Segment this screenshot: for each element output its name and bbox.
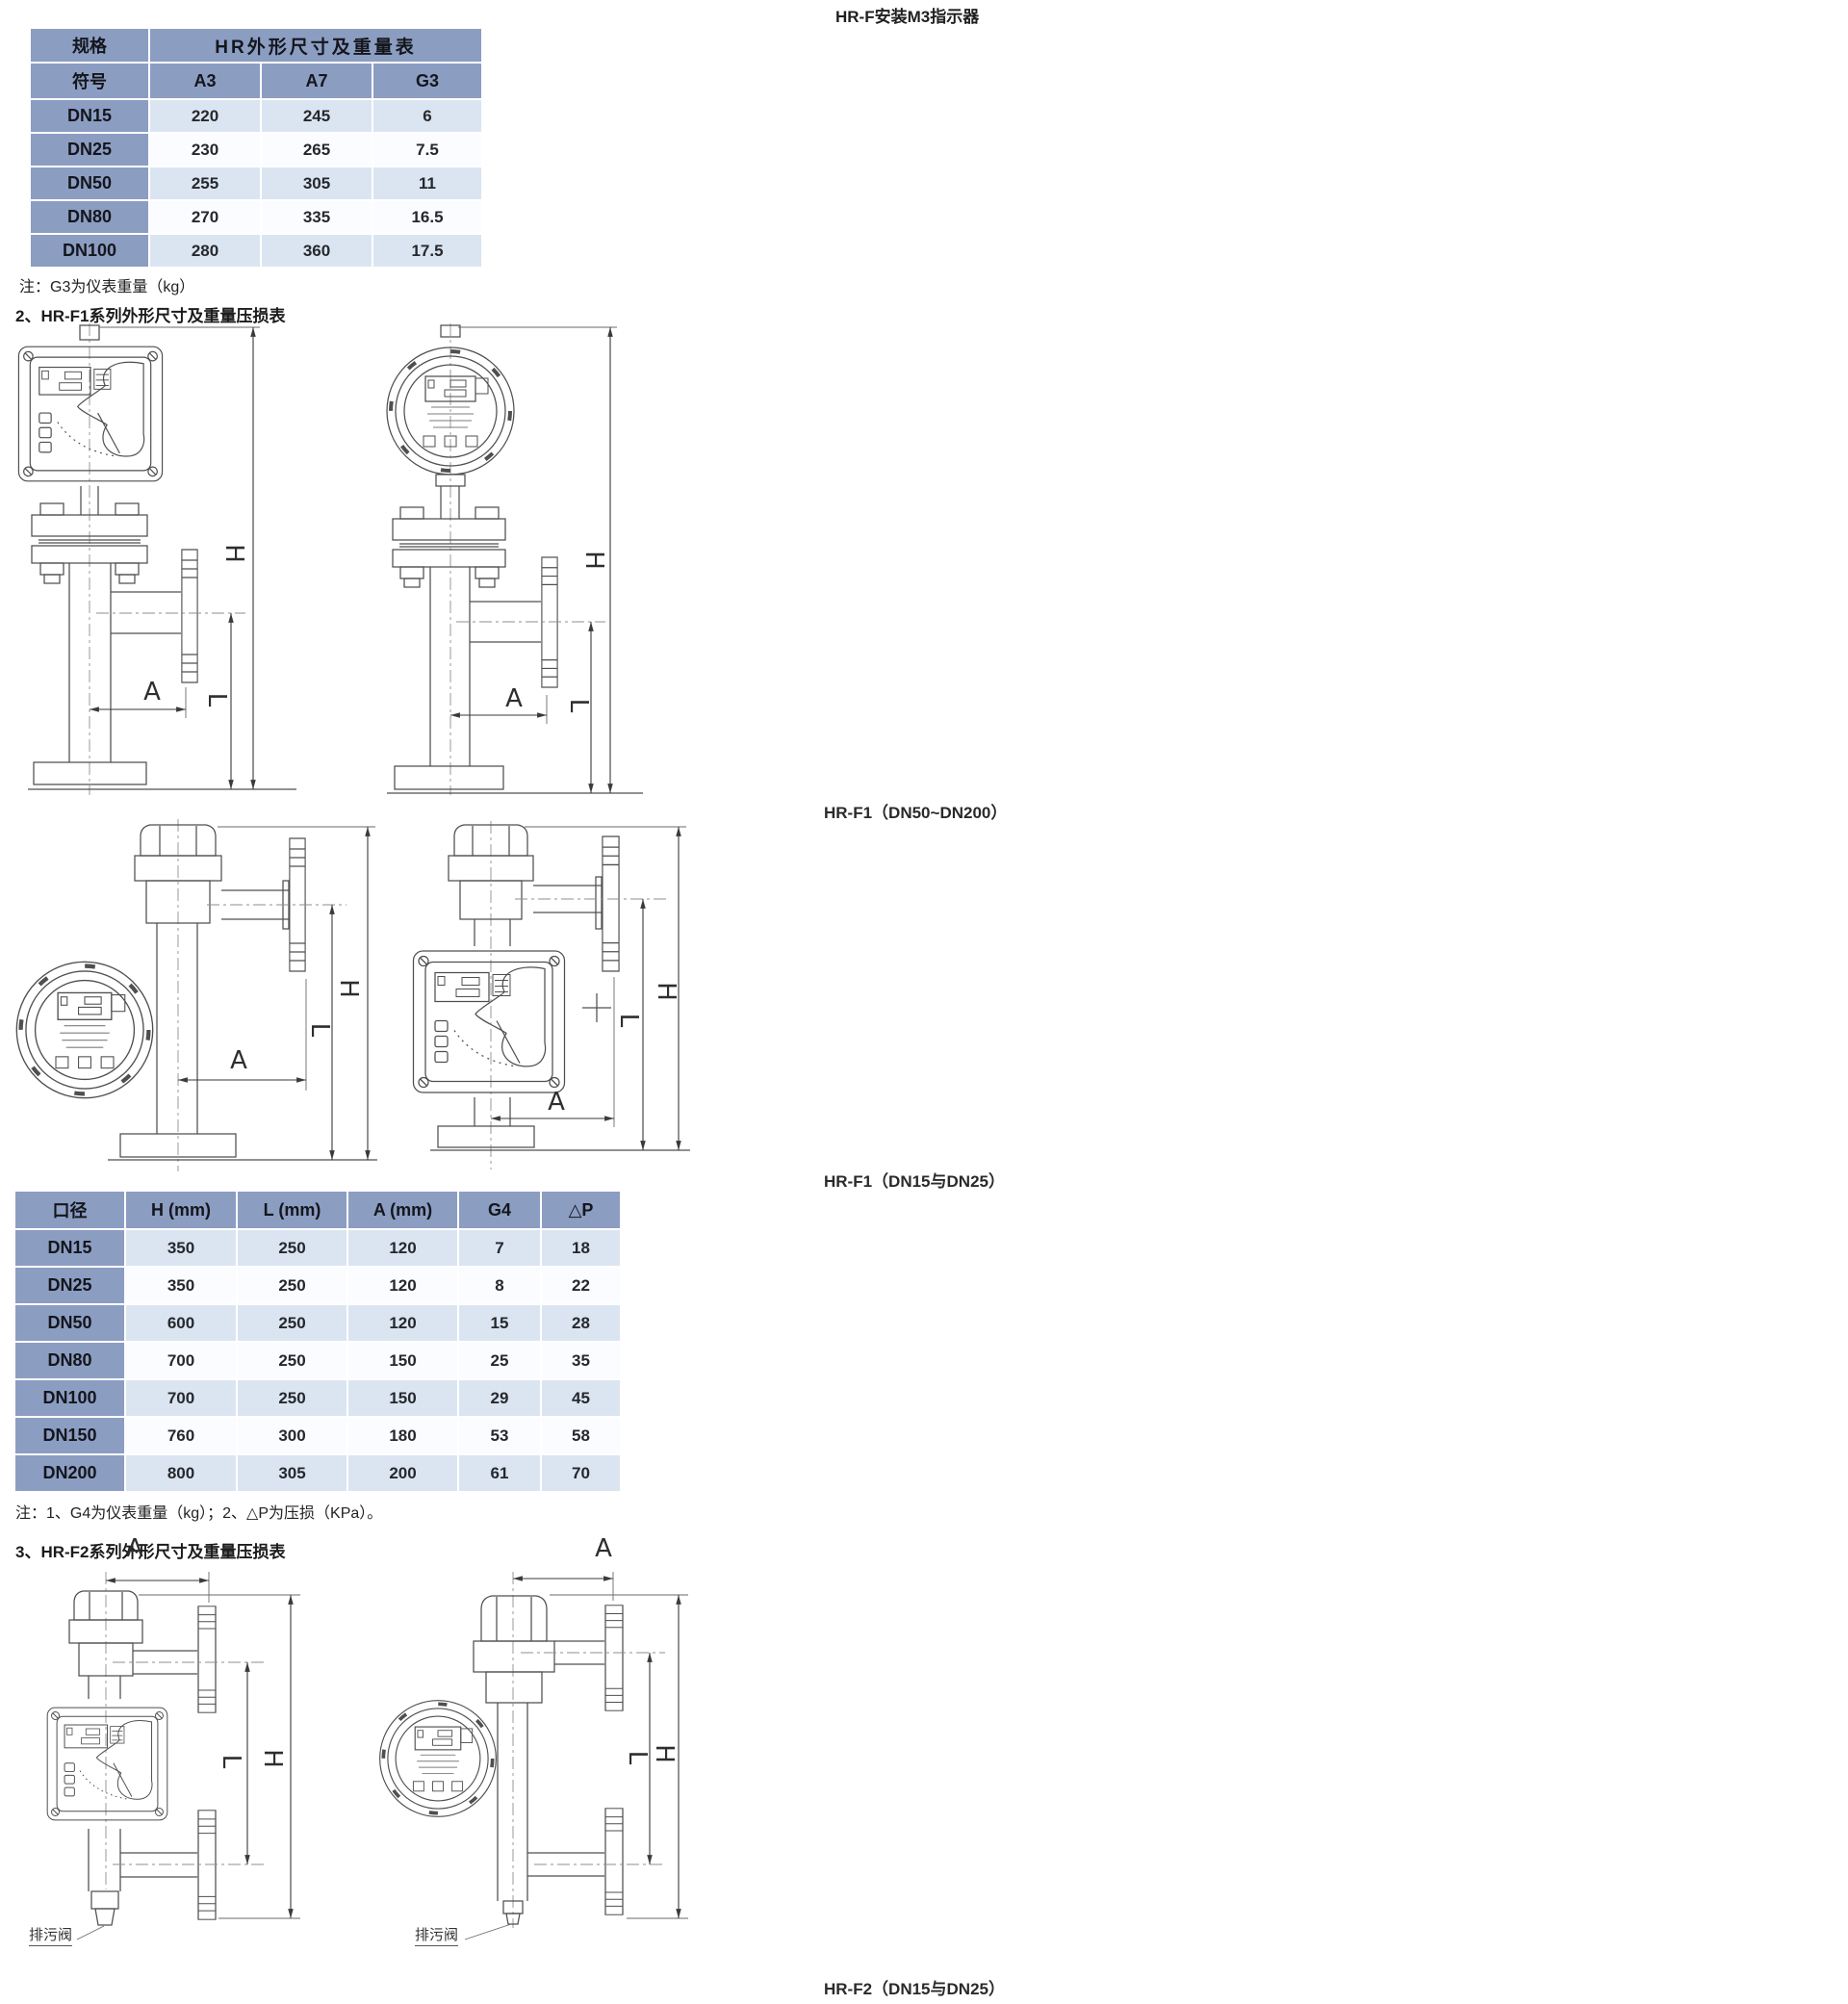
table-cell: 265 bbox=[261, 133, 372, 167]
table-cell: 120 bbox=[347, 1304, 458, 1342]
dim-label-h: H bbox=[579, 551, 608, 570]
flange bbox=[198, 1811, 216, 1919]
hr-f1-dimensions-weight-pressure-table: 口径 H (mm) L (mm) A (mm) G4 △P DN15 350 2… bbox=[13, 1190, 622, 1493]
table-cell: 35 bbox=[541, 1342, 621, 1379]
table-cell: 120 bbox=[347, 1229, 458, 1267]
table-cell: 350 bbox=[125, 1267, 237, 1304]
flowmeter-drawing bbox=[0, 813, 390, 1194]
flowmeter-drawing bbox=[12, 323, 300, 802]
row-header: DN200 bbox=[14, 1454, 125, 1492]
table-cell: 17.5 bbox=[372, 234, 482, 268]
table-row: 口径 H (mm) L (mm) A (mm) G4 △P bbox=[14, 1191, 621, 1229]
flowmeter-drawing bbox=[409, 813, 698, 1198]
flange bbox=[605, 1606, 623, 1710]
table-cell: 300 bbox=[237, 1417, 347, 1454]
hr-f2-round-head-drawing: A H L 排污阀 bbox=[369, 1535, 701, 1964]
table-row: DN100 280 360 17.5 bbox=[30, 234, 482, 268]
table-cell: 45 bbox=[541, 1379, 621, 1417]
table-cell: 18 bbox=[541, 1229, 621, 1267]
table-cell: 800 bbox=[125, 1454, 237, 1492]
table-cell: 53 bbox=[458, 1417, 541, 1454]
indicator-head bbox=[414, 951, 565, 1092]
table2-col-a: A (mm) bbox=[347, 1191, 458, 1229]
drain-valve bbox=[91, 1891, 118, 1909]
table-cell: 16.5 bbox=[372, 200, 482, 234]
datasheet-page: HR-F安装M3指示器 规格 HR外形尺寸及重量表 符号 A3 A7 G3 DN… bbox=[0, 0, 1848, 2004]
dim-label-h: H bbox=[650, 1744, 679, 1763]
flowmeter-drawing bbox=[21, 1535, 329, 1959]
indicator-head bbox=[380, 1701, 497, 1817]
flange bbox=[182, 550, 197, 682]
hr-f1-dn15-dn25-square-head-drawing: H L A bbox=[409, 813, 698, 1198]
flange bbox=[605, 1809, 623, 1914]
table2-col-diameter: 口径 bbox=[14, 1191, 125, 1229]
dim-label-l: L bbox=[202, 693, 231, 707]
table-cell: 280 bbox=[149, 234, 261, 268]
table-cell: 600 bbox=[125, 1304, 237, 1342]
dim-label-h: H bbox=[652, 982, 680, 1001]
table-cell: 220 bbox=[149, 99, 261, 133]
row-header: DN15 bbox=[30, 99, 149, 133]
table-cell: 8 bbox=[458, 1267, 541, 1304]
dim-label-a: A bbox=[548, 1088, 565, 1117]
dim-label-l: L bbox=[305, 1023, 334, 1038]
table-cell: 15 bbox=[458, 1304, 541, 1342]
table-cell: 150 bbox=[347, 1379, 458, 1417]
table-cell: 250 bbox=[237, 1267, 347, 1304]
table-row: DN50 600 250 120 15 28 bbox=[14, 1304, 621, 1342]
table2-col-l: L (mm) bbox=[237, 1191, 347, 1229]
caption-hr-f1-small: HR-F1（DN15与DN25） bbox=[824, 1168, 1005, 1192]
dim-label-a: A bbox=[143, 678, 161, 707]
table2-col-dp: △P bbox=[541, 1191, 621, 1229]
row-header: DN150 bbox=[14, 1417, 125, 1454]
hr-f2-square-head-drawing: A H L 排污阀 bbox=[21, 1535, 329, 1959]
table-cell: 7.5 bbox=[372, 133, 482, 167]
row-header: DN50 bbox=[14, 1304, 125, 1342]
table-cell: 700 bbox=[125, 1342, 237, 1379]
table2-col-g4: G4 bbox=[458, 1191, 541, 1229]
dim-label-l: L bbox=[623, 1751, 652, 1765]
hr-f1-dn15-dn25-round-head-drawing: H L A bbox=[0, 813, 390, 1194]
table-row: DN80 700 250 150 25 35 bbox=[14, 1342, 621, 1379]
table-cell: 29 bbox=[458, 1379, 541, 1417]
table-cell: 200 bbox=[347, 1454, 458, 1492]
table-row: DN80 270 335 16.5 bbox=[30, 200, 482, 234]
table-cell: 250 bbox=[237, 1304, 347, 1342]
table-row: 规格 HR外形尺寸及重量表 bbox=[30, 28, 482, 63]
table-cell: 305 bbox=[261, 167, 372, 200]
table-cell: 360 bbox=[261, 234, 372, 268]
table-row: 符号 A3 A7 G3 bbox=[30, 63, 482, 99]
table1-col-g3: G3 bbox=[372, 63, 482, 99]
table-cell: 28 bbox=[541, 1304, 621, 1342]
table-cell: 120 bbox=[347, 1267, 458, 1304]
table1-col-a3: A3 bbox=[149, 63, 261, 99]
row-header: DN80 bbox=[14, 1342, 125, 1379]
row-header: DN100 bbox=[30, 234, 149, 268]
table-row: DN100 700 250 150 29 45 bbox=[14, 1379, 621, 1417]
table-cell: 150 bbox=[347, 1342, 458, 1379]
drain-valve-nozzle bbox=[95, 1909, 115, 1925]
table-cell: 58 bbox=[541, 1417, 621, 1454]
table-cell: 250 bbox=[237, 1342, 347, 1379]
dim-label-a: A bbox=[595, 1534, 612, 1563]
table-cell: 7 bbox=[458, 1229, 541, 1267]
table-row: DN50 255 305 11 bbox=[30, 167, 482, 200]
dim-label-a: A bbox=[230, 1046, 247, 1075]
table-cell: 230 bbox=[149, 133, 261, 167]
dim-label-h: H bbox=[258, 1749, 287, 1768]
table-cell: 305 bbox=[237, 1454, 347, 1492]
table-cell: 255 bbox=[149, 167, 261, 200]
flange bbox=[198, 1606, 216, 1712]
flange bbox=[603, 836, 619, 971]
table-row: DN25 350 250 120 8 22 bbox=[14, 1267, 621, 1304]
table1-note: 注：G3为仪表重量（kg） bbox=[19, 273, 194, 296]
table-cell: 25 bbox=[458, 1342, 541, 1379]
table-cell: 245 bbox=[261, 99, 372, 133]
dim-label-l: L bbox=[217, 1755, 245, 1769]
indicator-head bbox=[16, 962, 152, 1097]
flange bbox=[542, 557, 557, 687]
row-header: DN80 bbox=[30, 200, 149, 234]
dim-label-l: L bbox=[614, 1014, 643, 1028]
table-cell: 70 bbox=[541, 1454, 621, 1492]
table-row: DN150 760 300 180 53 58 bbox=[14, 1417, 621, 1454]
table2-note: 注：1、G4为仪表重量（kg）；2、△P为压损（KPa）。 bbox=[15, 1500, 382, 1523]
dim-label-a: A bbox=[505, 684, 523, 713]
drain-valve-label: 排污阀 bbox=[29, 1924, 72, 1946]
table-cell: 270 bbox=[149, 200, 261, 234]
table-cell: 350 bbox=[125, 1229, 237, 1267]
drain-valve-label: 排污阀 bbox=[415, 1924, 458, 1946]
table-cell: 250 bbox=[237, 1379, 347, 1417]
row-header: DN100 bbox=[14, 1379, 125, 1417]
indicator-head bbox=[47, 1708, 167, 1820]
row-header: DN15 bbox=[14, 1229, 125, 1267]
table-cell: 61 bbox=[458, 1454, 541, 1492]
table-row: DN25 230 265 7.5 bbox=[30, 133, 482, 167]
dim-label-a: A bbox=[126, 1534, 143, 1563]
table-cell: 11 bbox=[372, 167, 482, 200]
page-title: HR-F安装M3指示器 bbox=[835, 3, 979, 27]
table-cell: 700 bbox=[125, 1379, 237, 1417]
table-cell: 6 bbox=[372, 99, 482, 133]
dim-label-h: H bbox=[219, 544, 248, 563]
caption-hr-f2-small: HR-F2（DN15与DN25） bbox=[824, 1975, 1005, 1999]
table-cell: 250 bbox=[237, 1229, 347, 1267]
indicator-head bbox=[18, 347, 162, 481]
dim-label-h: H bbox=[334, 979, 363, 998]
table-cell: 760 bbox=[125, 1417, 237, 1454]
table1-corner-header: 规格 bbox=[30, 28, 149, 63]
row-header: DN25 bbox=[30, 133, 149, 167]
table1-title: HR外形尺寸及重量表 bbox=[149, 28, 482, 63]
row-header: DN25 bbox=[14, 1267, 125, 1304]
table-row: DN15 350 250 120 7 18 bbox=[14, 1229, 621, 1267]
table1-col-a7: A7 bbox=[261, 63, 372, 99]
caption-hr-f1-large: HR-F1（DN50~DN200） bbox=[824, 799, 1007, 823]
table-cell: 180 bbox=[347, 1417, 458, 1454]
table2-col-h: H (mm) bbox=[125, 1191, 237, 1229]
table-cell: 22 bbox=[541, 1267, 621, 1304]
hr-f1-dn50-dn200-square-head-drawing: H L A bbox=[12, 323, 300, 802]
dim-label-l: L bbox=[564, 699, 593, 713]
row-header: DN50 bbox=[30, 167, 149, 200]
hr-f1-dn50-dn200-round-head-drawing: H L A bbox=[368, 323, 647, 802]
table1-symbol-header: 符号 bbox=[30, 63, 149, 99]
table-cell: 335 bbox=[261, 200, 372, 234]
hr-dimensions-weight-table: 规格 HR外形尺寸及重量表 符号 A3 A7 G3 DN15 220 245 6… bbox=[29, 27, 483, 269]
table-row: DN15 220 245 6 bbox=[30, 99, 482, 133]
table-row: DN200 800 305 200 61 70 bbox=[14, 1454, 621, 1492]
